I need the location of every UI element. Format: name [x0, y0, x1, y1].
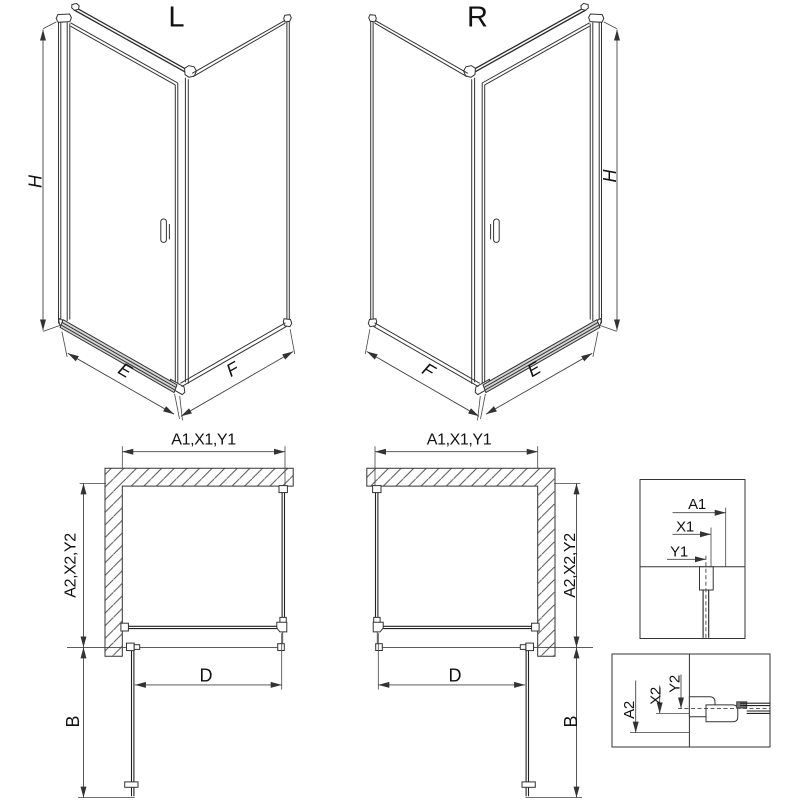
- door-open-dim-label: B: [561, 715, 581, 727]
- dim-y1-label: Y1: [670, 544, 688, 561]
- wall-dim-side-label: A2,X2,Y2: [63, 533, 80, 598]
- plan-left-geometry: [67, 446, 287, 797]
- dim-y2-label: Y2: [667, 675, 684, 693]
- iso-view-right: R H F E: [365, 2, 620, 421]
- plan-view-right: A1,X1,Y1 A2,X2,Y2 D B: [367, 432, 593, 798]
- enclosure-right-geometry: [365, 3, 617, 420]
- dim-a1-label: A1: [688, 496, 706, 513]
- panel-depth-dim-label: F: [223, 357, 243, 380]
- variant-label-right: R: [467, 2, 488, 34]
- dim-x2-label: X2: [648, 687, 665, 705]
- door-open-dim-label: B: [63, 715, 83, 727]
- door-clear-dim-label: D: [449, 666, 462, 686]
- technical-drawing-page: L H E F R H F E A1,X1,Y1 A2,X2,Y2 D B A1…: [0, 0, 800, 800]
- plan-view-left: A1,X1,Y1 A2,X2,Y2 D B: [63, 432, 294, 798]
- door-width-dim-label: E: [115, 359, 136, 383]
- detail-wall-profile-bottom: A2 X2 Y2: [612, 654, 770, 747]
- wall-dim-top-label: A1,X1,Y1: [171, 432, 236, 449]
- door-clear-dim-label: D: [200, 666, 213, 686]
- height-dim-label: H: [26, 174, 46, 188]
- enclosure-left-geometry: [43, 3, 295, 420]
- plan-right-geometry: [373, 446, 593, 797]
- dim-x1-label: X1: [676, 519, 694, 536]
- wall-dim-top-label: A1,X1,Y1: [427, 432, 492, 449]
- variant-label-left: L: [168, 2, 184, 34]
- detail-wall-profile-top: A1 X1 Y1: [640, 480, 745, 639]
- shower-enclosure-drawing: L H E F R H F E A1,X1,Y1 A2,X2,Y2 D B A1…: [0, 0, 800, 800]
- dim-a2-label: A2: [621, 701, 638, 719]
- glass-clamp-arm: [706, 705, 738, 722]
- panel-depth-dim-label: F: [419, 359, 439, 382]
- height-dim-label: H: [600, 169, 620, 183]
- wall-dim-side-label: A2,X2,Y2: [562, 533, 579, 598]
- iso-view-left: L H E F: [26, 2, 295, 421]
